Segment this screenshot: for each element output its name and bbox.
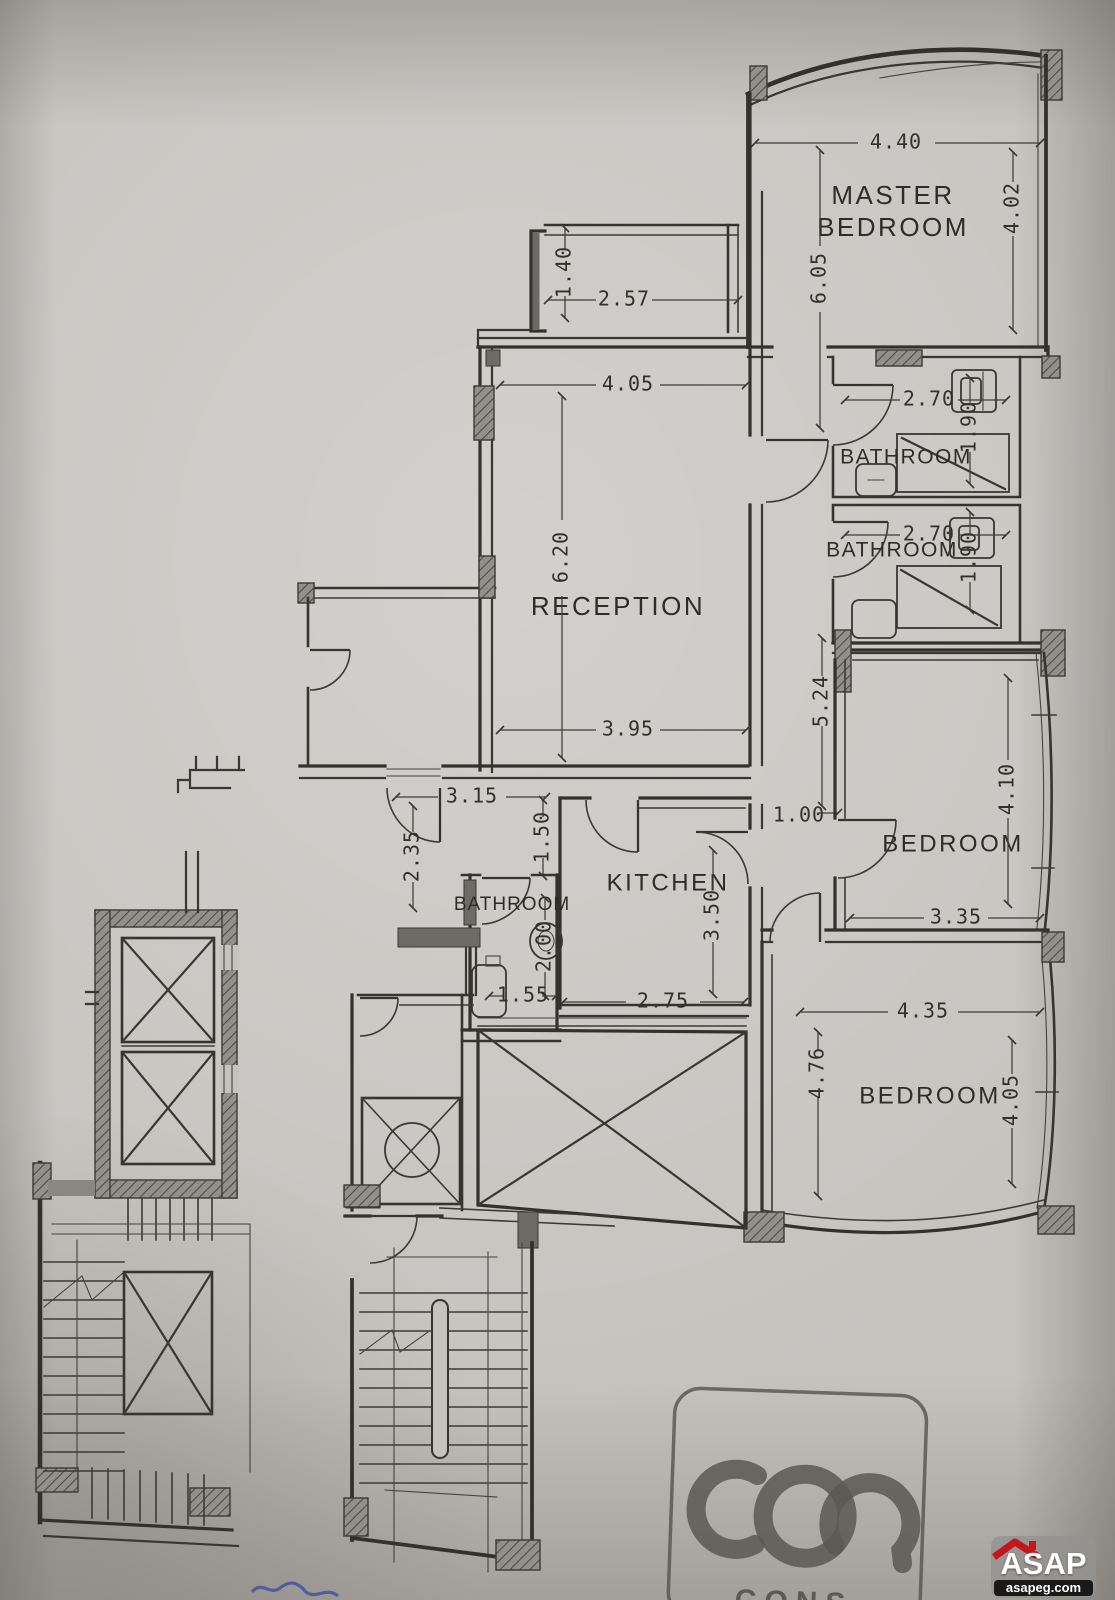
dim-hall-mid: 1.50 bbox=[530, 811, 554, 863]
dim-bedroom-bot-right: 4.05 bbox=[999, 1074, 1023, 1126]
corridor: 5.24 1.00 bbox=[773, 638, 838, 827]
balcony: 1.40 2.57 bbox=[478, 225, 738, 347]
handwritten-annotation bbox=[252, 1583, 338, 1596]
dim-bedroom-bot-left: 4.76 bbox=[805, 1047, 829, 1099]
section-mark-symbol bbox=[178, 757, 244, 792]
dim-bath-mid-d: 1.90 bbox=[957, 531, 981, 583]
room-label-master-1: MASTER bbox=[831, 180, 954, 210]
elevator-core bbox=[86, 852, 239, 1198]
kitchen: KITCHEN 3.50 2.75 1.50 3.15 2.35 bbox=[396, 784, 750, 1017]
dim-corridor-h: 5.24 bbox=[809, 675, 833, 727]
elevator-car-1 bbox=[122, 938, 214, 1042]
dim-bedroom-mid-h: 4.10 bbox=[995, 763, 1019, 815]
floor-plan-drawing: MASTER BEDROOM BATHROOM 2.70 1.90 bbox=[0, 0, 1115, 1600]
dim-bath-mid-w: 2.70 bbox=[903, 522, 955, 546]
dim-master-left: 6.05 bbox=[807, 252, 831, 304]
bathroom-upper: BATHROOM 2.70 1.90 bbox=[833, 357, 1020, 497]
stamp-caption: CONS bbox=[734, 1584, 854, 1600]
bedroom-bottom: BEDROOM 4.35 4.76 4.05 bbox=[744, 893, 1074, 1242]
dim-bath-small-w: 1.55 bbox=[497, 983, 549, 1007]
construction-stamp: CONS bbox=[667, 1388, 927, 1600]
service-room-and-duct bbox=[346, 928, 480, 1210]
master-bedroom-label: MASTER BEDROOM bbox=[817, 180, 969, 242]
dim-reception-bottom: 3.95 bbox=[602, 717, 654, 741]
room-label-reception: RECEPTION bbox=[531, 591, 705, 621]
room-label-bedroom-bottom: BEDROOM bbox=[859, 1082, 1001, 1109]
left-room bbox=[298, 556, 495, 766]
shower-icon bbox=[897, 566, 1001, 628]
dim-bath-upper-d: 1.90 bbox=[957, 401, 981, 453]
dim-balcony-w: 2.57 bbox=[598, 287, 650, 311]
dim-bedroom-bot-top: 4.35 bbox=[897, 999, 949, 1023]
bathroom-small: BATHROOM 2.00 1.55 bbox=[454, 875, 570, 1041]
bathroom-middle: BATHROOM 2.70 1.90 bbox=[826, 505, 1048, 653]
watermark-domain: asapeg.com bbox=[994, 1580, 1093, 1596]
light-well bbox=[478, 1018, 746, 1228]
dim-bath-upper-w: 2.70 bbox=[903, 387, 955, 411]
stairwell-left bbox=[33, 1163, 250, 1546]
stairwell-middle bbox=[344, 1185, 614, 1572]
dim-kitchen-w: 2.75 bbox=[637, 989, 689, 1013]
dim-master-right: 4.02 bbox=[1000, 182, 1024, 234]
dim-reception-h: 6.20 bbox=[549, 531, 573, 583]
room-label-bathroom-upper: BATHROOM bbox=[840, 446, 972, 469]
dim-corridor-w: 1.00 bbox=[773, 803, 825, 827]
asap-watermark: ASAP asapeg.com bbox=[991, 1536, 1096, 1598]
dim-reception-top: 4.05 bbox=[602, 372, 654, 396]
scanned-floor-plan: MASTER BEDROOM BATHROOM 2.70 1.90 bbox=[0, 0, 1115, 1600]
stamp-logo-icon bbox=[694, 1468, 912, 1564]
dim-balcony-d: 1.40 bbox=[552, 246, 576, 298]
room-label-bedroom-middle: BEDROOM bbox=[882, 830, 1024, 857]
sink-icon bbox=[852, 600, 896, 638]
dim-kitchen-h: 3.50 bbox=[700, 889, 724, 941]
watermark-brand: ASAP bbox=[991, 1548, 1096, 1579]
room-label-master-2: BEDROOM bbox=[817, 212, 969, 242]
sink-icon bbox=[856, 464, 896, 496]
dim-hall-left: 2.35 bbox=[400, 830, 424, 882]
dim-master-top: 4.40 bbox=[870, 130, 922, 154]
dim-bath-small-h: 2.00 bbox=[532, 920, 556, 972]
elevator-car-2 bbox=[122, 1052, 214, 1164]
spine-wall bbox=[750, 94, 762, 1005]
dim-hall-top: 3.15 bbox=[446, 784, 498, 808]
dim-bedroom-mid-w: 3.35 bbox=[930, 905, 982, 929]
room-label-bathroom-small: BATHROOM bbox=[454, 894, 570, 915]
